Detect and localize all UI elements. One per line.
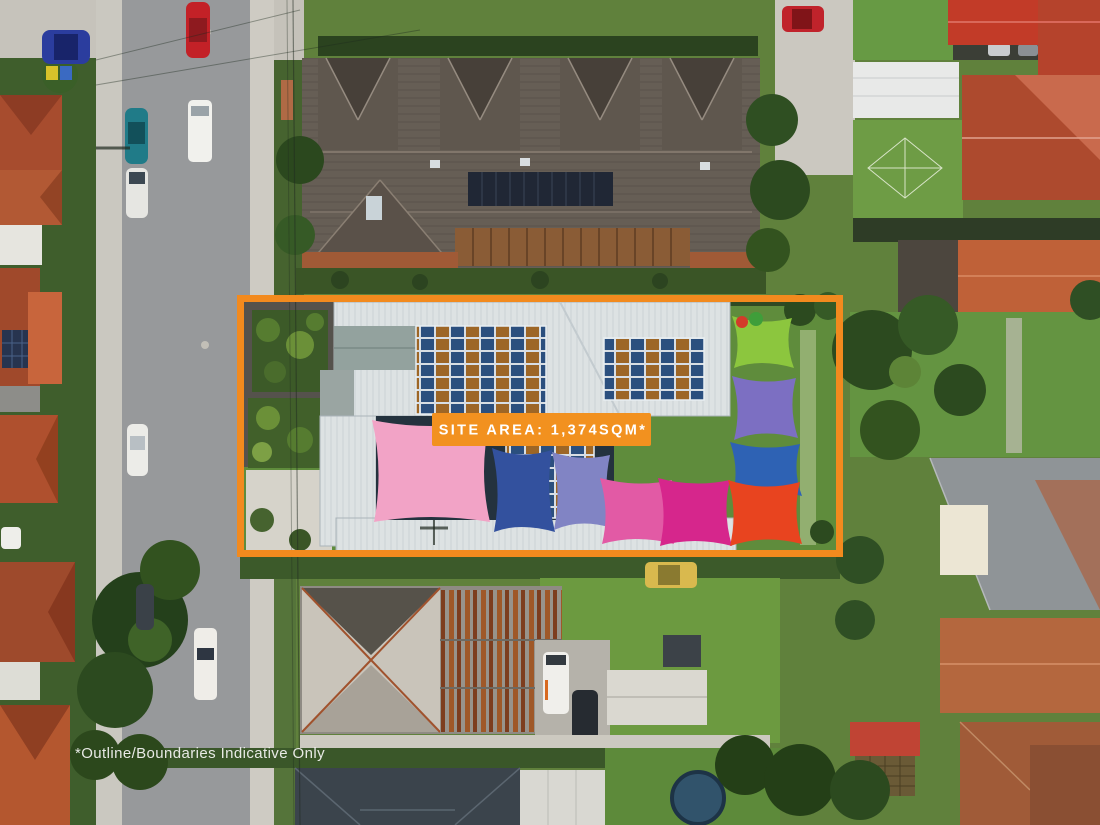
sail-navy <box>492 448 555 532</box>
site-area-label: SITE AREA: 1,374SQM* <box>439 423 648 439</box>
dark-suv <box>572 690 598 740</box>
sail-purple <box>732 376 798 440</box>
trampoline <box>672 772 724 824</box>
sail-red <box>728 480 802 546</box>
sail-magenta <box>658 478 732 546</box>
aerial-photo: SITE AREA: 1,374SQM* *Outline/Boundaries… <box>0 0 1100 825</box>
disclaimer-text: *Outline/Boundaries Indicative Only <box>75 745 325 762</box>
houses-left <box>0 58 96 825</box>
aerial-photo-frame: SITE AREA: 1,374SQM* *Outline/Boundaries… <box>0 0 1100 825</box>
white-ute <box>194 628 217 700</box>
atrium-glass <box>468 172 613 206</box>
sail-periwinkle <box>552 452 612 530</box>
slate-roof-house <box>295 768 520 825</box>
apartment-building <box>274 36 810 295</box>
